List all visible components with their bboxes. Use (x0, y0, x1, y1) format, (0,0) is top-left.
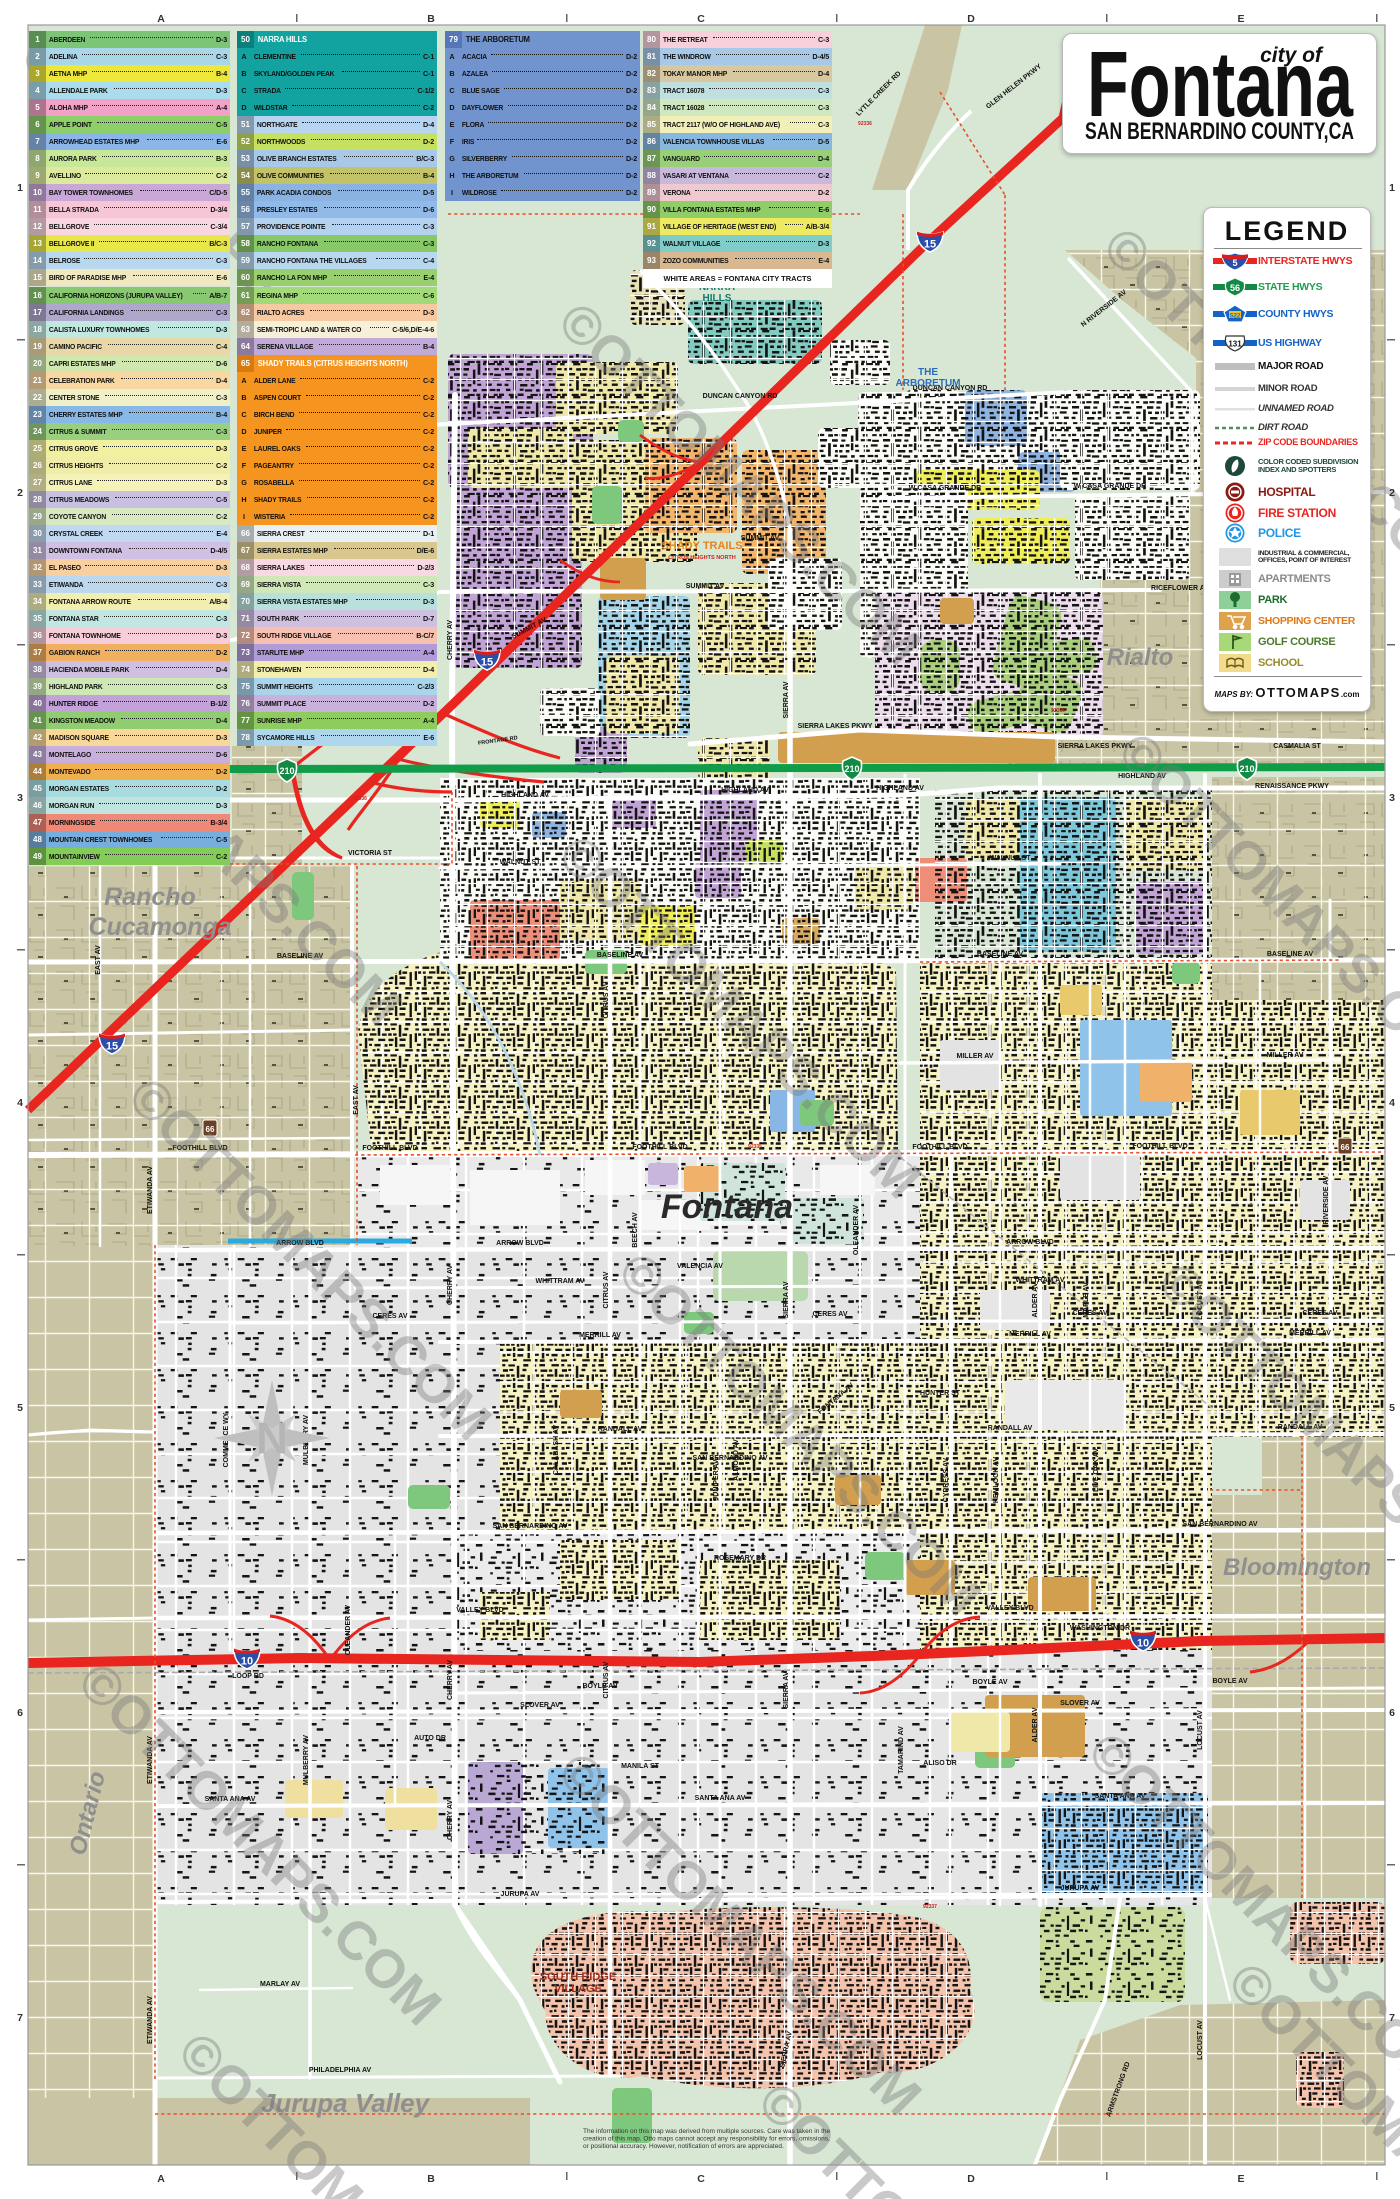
svg-text:VALLEY BLVD: VALLEY BLVD (456, 1607, 503, 1614)
svg-text:MERRILL AV: MERRILL AV (1289, 1330, 1331, 1337)
svg-text:210: 210 (844, 764, 859, 774)
svg-text:4: 4 (1389, 1097, 1395, 1109)
svg-text:ETIWANDA AV: ETIWANDA AV (147, 1166, 154, 1214)
svg-text:131: 131 (1228, 340, 1242, 349)
svg-text:5: 5 (1389, 1402, 1395, 1414)
svg-text:CHERRY AV: CHERRY AV (447, 1660, 454, 1700)
svg-text:WALNUT ST: WALNUT ST (990, 855, 1032, 862)
svg-text:D: D (967, 2173, 975, 2185)
svg-text:92335: 92335 (748, 1144, 762, 1150)
svg-text:92336: 92336 (353, 796, 367, 802)
svg-text:or positional accuracy. Howeve: or positional accuracy. However, notific… (583, 2143, 784, 2150)
svg-text:A: A (157, 13, 165, 25)
svg-text:92337: 92337 (923, 1904, 937, 1910)
svg-text:15: 15 (481, 657, 493, 669)
svg-text:CALABASH AV: CALABASH AV (553, 1425, 560, 1475)
svg-text:7: 7 (1389, 2012, 1395, 2024)
svg-text:LOCUST AV: LOCUST AV (1197, 1710, 1204, 1750)
svg-text:AUTO DR: AUTO DR (414, 1735, 446, 1742)
svg-text:W CASA GRANDE DR: W CASA GRANDE DR (1074, 483, 1146, 490)
svg-text:2: 2 (17, 487, 23, 499)
svg-text:SANTA ANA AV: SANTA ANA AV (695, 1795, 746, 1802)
svg-text:OLEANDER AV: OLEANDER AV (345, 1605, 352, 1656)
svg-text:ALDER AV: ALDER AV (1032, 1707, 1039, 1742)
svg-text:W CASA GRANDE DR: W CASA GRANDE DR (909, 485, 981, 492)
svg-text:CITRUS AV: CITRUS AV (603, 1271, 610, 1308)
svg-text:92336: 92336 (1051, 708, 1065, 714)
svg-text:FOOTHILL BLVD: FOOTHILL BLVD (632, 1144, 687, 1151)
svg-text:HUNTER ST: HUNTER ST (920, 1390, 961, 1397)
svg-text:JURUPA AV: JURUPA AV (1061, 1885, 1100, 1892)
svg-text:RICEFLOWER AV: RICEFLOWER AV (1151, 585, 1209, 592)
svg-text:Cucamonga: Cucamonga (88, 913, 231, 941)
svg-text:2: 2 (1389, 487, 1395, 499)
svg-text:6: 6 (17, 1707, 23, 1719)
svg-text:JURUPA AV: JURUPA AV (501, 1891, 540, 1898)
svg-text:CHERRY AV: CHERRY AV (447, 1800, 454, 1840)
svg-text:EAST AV: EAST AV (353, 1085, 360, 1115)
svg-text:CYPRESS AV: CYPRESS AV (943, 1458, 950, 1503)
svg-text:ARROW BLVD: ARROW BLVD (496, 1240, 544, 1247)
svg-text:LOCUST AV: LOCUST AV (1197, 2020, 1204, 2060)
svg-text:MULBERRY AV: MULBERRY AV (303, 1735, 310, 1786)
svg-text:SAN BERNARDINO AV: SAN BERNARDINO AV (492, 1523, 567, 1530)
svg-text:FOOTHILL BLVD: FOOTHILL BLVD (912, 1144, 967, 1151)
svg-text:CITRUS HEIGHTS NORTH: CITRUS HEIGHTS NORTH (668, 555, 736, 561)
svg-text:DUNCAN CANYON RD: DUNCAN CANYON RD (703, 393, 778, 400)
svg-text:BOYLE AV: BOYLE AV (582, 1683, 617, 1690)
svg-text:D: D (967, 13, 975, 25)
svg-text:VALENCIA AV: VALENCIA AV (677, 1263, 723, 1270)
svg-text:SAN BERNARDINO AV: SAN BERNARDINO AV (1182, 1521, 1257, 1528)
svg-text:ETIWANDA AV: ETIWANDA AV (147, 1996, 154, 2044)
svg-text:10: 10 (241, 1656, 253, 1668)
svg-text:C: C (697, 13, 705, 25)
svg-text:SIERRA AV: SIERRA AV (783, 681, 790, 718)
svg-text:MILLER AV: MILLER AV (957, 1053, 994, 1060)
svg-text:3: 3 (1389, 792, 1395, 804)
svg-text:HIGHLAND AV: HIGHLAND AV (501, 792, 549, 799)
svg-text:B: B (427, 13, 435, 25)
svg-text:7: 7 (17, 2012, 23, 2024)
svg-text:creation of this map. Otto map: creation of this map. Otto maps cannot a… (583, 2136, 830, 2143)
svg-text:SOUTH RIDGE: SOUTH RIDGE (540, 1971, 616, 1983)
svg-text:HIGHLAND AV: HIGHLAND AV (721, 787, 769, 794)
svg-text:ALDER AV: ALDER AV (1032, 1282, 1039, 1317)
svg-text:MILLER AV: MILLER AV (1267, 1052, 1304, 1059)
svg-text:MARLAY AV: MARLAY AV (260, 1981, 300, 1988)
svg-text:WHITTRAM AV: WHITTRAM AV (1016, 1277, 1065, 1284)
svg-text:FOOTHILL BLVD: FOOTHILL BLVD (362, 1145, 417, 1152)
svg-text:The information on this map wa: The information on this map was derived … (583, 2128, 830, 2135)
svg-text:SUMMIT AV: SUMMIT AV (686, 583, 725, 590)
svg-text:CERES AV: CERES AV (812, 1311, 847, 1318)
svg-text:BEECH AV: BEECH AV (632, 1212, 639, 1248)
svg-text:92336: 92336 (858, 121, 872, 127)
svg-text:15: 15 (924, 239, 936, 251)
svg-text:JUNIPER AV: JUNIPER AV (713, 1459, 720, 1501)
svg-text:Rancho: Rancho (104, 883, 196, 911)
svg-text:1: 1 (1389, 182, 1395, 194)
svg-text:CHERRY AV: CHERRY AV (447, 620, 454, 660)
svg-text:ARBORETUM: ARBORETUM (896, 378, 961, 389)
svg-text:SLOVER AV: SLOVER AV (520, 1702, 560, 1709)
svg-text:MERRILL AV: MERRILL AV (1009, 1331, 1051, 1338)
svg-text:15: 15 (106, 1041, 118, 1053)
svg-text:Bloomington: Bloomington (1223, 1554, 1371, 1581)
svg-text:WHITTRAM AV: WHITTRAM AV (536, 1278, 585, 1285)
svg-text:ALMOND AV: ALMOND AV (733, 1439, 740, 1481)
svg-text:RIVERSIDE AV: RIVERSIDE AV (1323, 1175, 1330, 1224)
svg-text:5: 5 (17, 1402, 23, 1414)
svg-text:3: 3 (17, 792, 23, 804)
svg-text:PHILADELPHIA AV: PHILADELPHIA AV (309, 2067, 372, 2074)
svg-text:1: 1 (17, 182, 23, 194)
svg-text:N: N (256, 1414, 288, 1463)
svg-text:CERES AV: CERES AV (1302, 1310, 1337, 1317)
svg-text:MAPLE AV: MAPLE AV (1083, 1282, 1090, 1318)
svg-text:Fontana: Fontana (661, 1188, 793, 1226)
svg-text:LOOP RD: LOOP RD (232, 1673, 264, 1680)
svg-text:B: B (427, 2173, 435, 2185)
svg-text:MANILA ST: MANILA ST (621, 1763, 660, 1770)
svg-text:EAST AV: EAST AV (95, 945, 102, 975)
svg-text:MERRILL AV: MERRILL AV (579, 1332, 621, 1339)
svg-text:56: 56 (1230, 283, 1240, 293)
svg-text:ALISO DR: ALISO DR (923, 1760, 956, 1767)
svg-text:CERES AV: CERES AV (1072, 1310, 1107, 1317)
svg-text:66: 66 (1341, 1143, 1350, 1152)
svg-text:OLEANDER AV: OLEANDER AV (853, 1205, 860, 1256)
svg-text:VICTORIA ST: VICTORIA ST (348, 850, 393, 857)
svg-text:BASELINE AV: BASELINE AV (977, 951, 1024, 958)
svg-text:LIVE OAK AV: LIVE OAK AV (1093, 1448, 1100, 1492)
svg-text:WASHINGTON DR: WASHINGTON DR (1070, 1625, 1130, 1632)
svg-text:BOYLE AV: BOYLE AV (1212, 1678, 1247, 1685)
svg-text:Rialto: Rialto (1107, 644, 1174, 671)
svg-text:SLOVER AV: SLOVER AV (1060, 1700, 1100, 1707)
svg-text:RANDALL AV: RANDALL AV (988, 1425, 1033, 1432)
svg-text:ARROW BLVD: ARROW BLVD (1006, 1239, 1054, 1246)
svg-text:CHERRY AV: CHERRY AV (447, 1265, 454, 1305)
svg-text:WALNUT ST: WALNUT ST (500, 859, 542, 866)
svg-text:RANDALL AV: RANDALL AV (598, 1426, 643, 1433)
svg-text:4: 4 (17, 1097, 23, 1109)
svg-text:CITRUS AV: CITRUS AV (603, 1661, 610, 1698)
svg-text:210: 210 (279, 766, 294, 776)
svg-text:HILLS: HILLS (703, 293, 732, 304)
svg-text:FOOTHILL BLVD: FOOTHILL BLVD (1132, 1143, 1187, 1150)
svg-text:VALLEY BLVD: VALLEY BLVD (986, 1605, 1033, 1612)
svg-text:HIGHLAND AV: HIGHLAND AV (876, 785, 924, 792)
svg-text:THE: THE (918, 367, 938, 378)
svg-text:E: E (1237, 13, 1244, 25)
svg-text:10: 10 (1137, 1638, 1149, 1650)
svg-text:SIERRA AV: SIERRA AV (783, 1281, 790, 1318)
svg-text:SAN BERNARDINO COUNTY,CA: SAN BERNARDINO COUNTY,CA (1085, 118, 1354, 145)
svg-text:BOYLE AV: BOYLE AV (972, 1679, 1007, 1686)
svg-text:SIERRA AV: SIERRA AV (783, 1671, 790, 1708)
svg-text:SAN BERNARDINO AV: SAN BERNARDINO AV (692, 1455, 767, 1462)
svg-text:A: A (157, 2173, 165, 2185)
svg-text:E: E (1237, 2173, 1244, 2185)
svg-text:SIERRA LAKES PKWY: SIERRA LAKES PKWY (798, 723, 873, 730)
svg-text:RENAISSANCE PKWY: RENAISSANCE PKWY (1255, 783, 1329, 790)
svg-text:SHADY TRAILS: SHADY TRAILS (661, 540, 742, 552)
svg-text:6: 6 (1389, 1707, 1395, 1719)
svg-text:S22: S22 (1230, 314, 1241, 320)
svg-text:CITRUS AV: CITRUS AV (603, 981, 610, 1018)
svg-text:HEMLOCK AV: HEMLOCK AV (993, 1457, 1000, 1504)
svg-text:TAMARIND AV: TAMARIND AV (898, 1726, 905, 1774)
svg-text:210: 210 (1239, 764, 1254, 774)
svg-text:C: C (697, 2173, 705, 2185)
svg-text:CASMALIA ST: CASMALIA ST (1273, 743, 1321, 750)
svg-text:VILLAGE: VILLAGE (554, 1983, 602, 1995)
svg-text:5: 5 (1232, 258, 1237, 268)
svg-text:ROSEMARY DR: ROSEMARY DR (714, 1555, 766, 1562)
